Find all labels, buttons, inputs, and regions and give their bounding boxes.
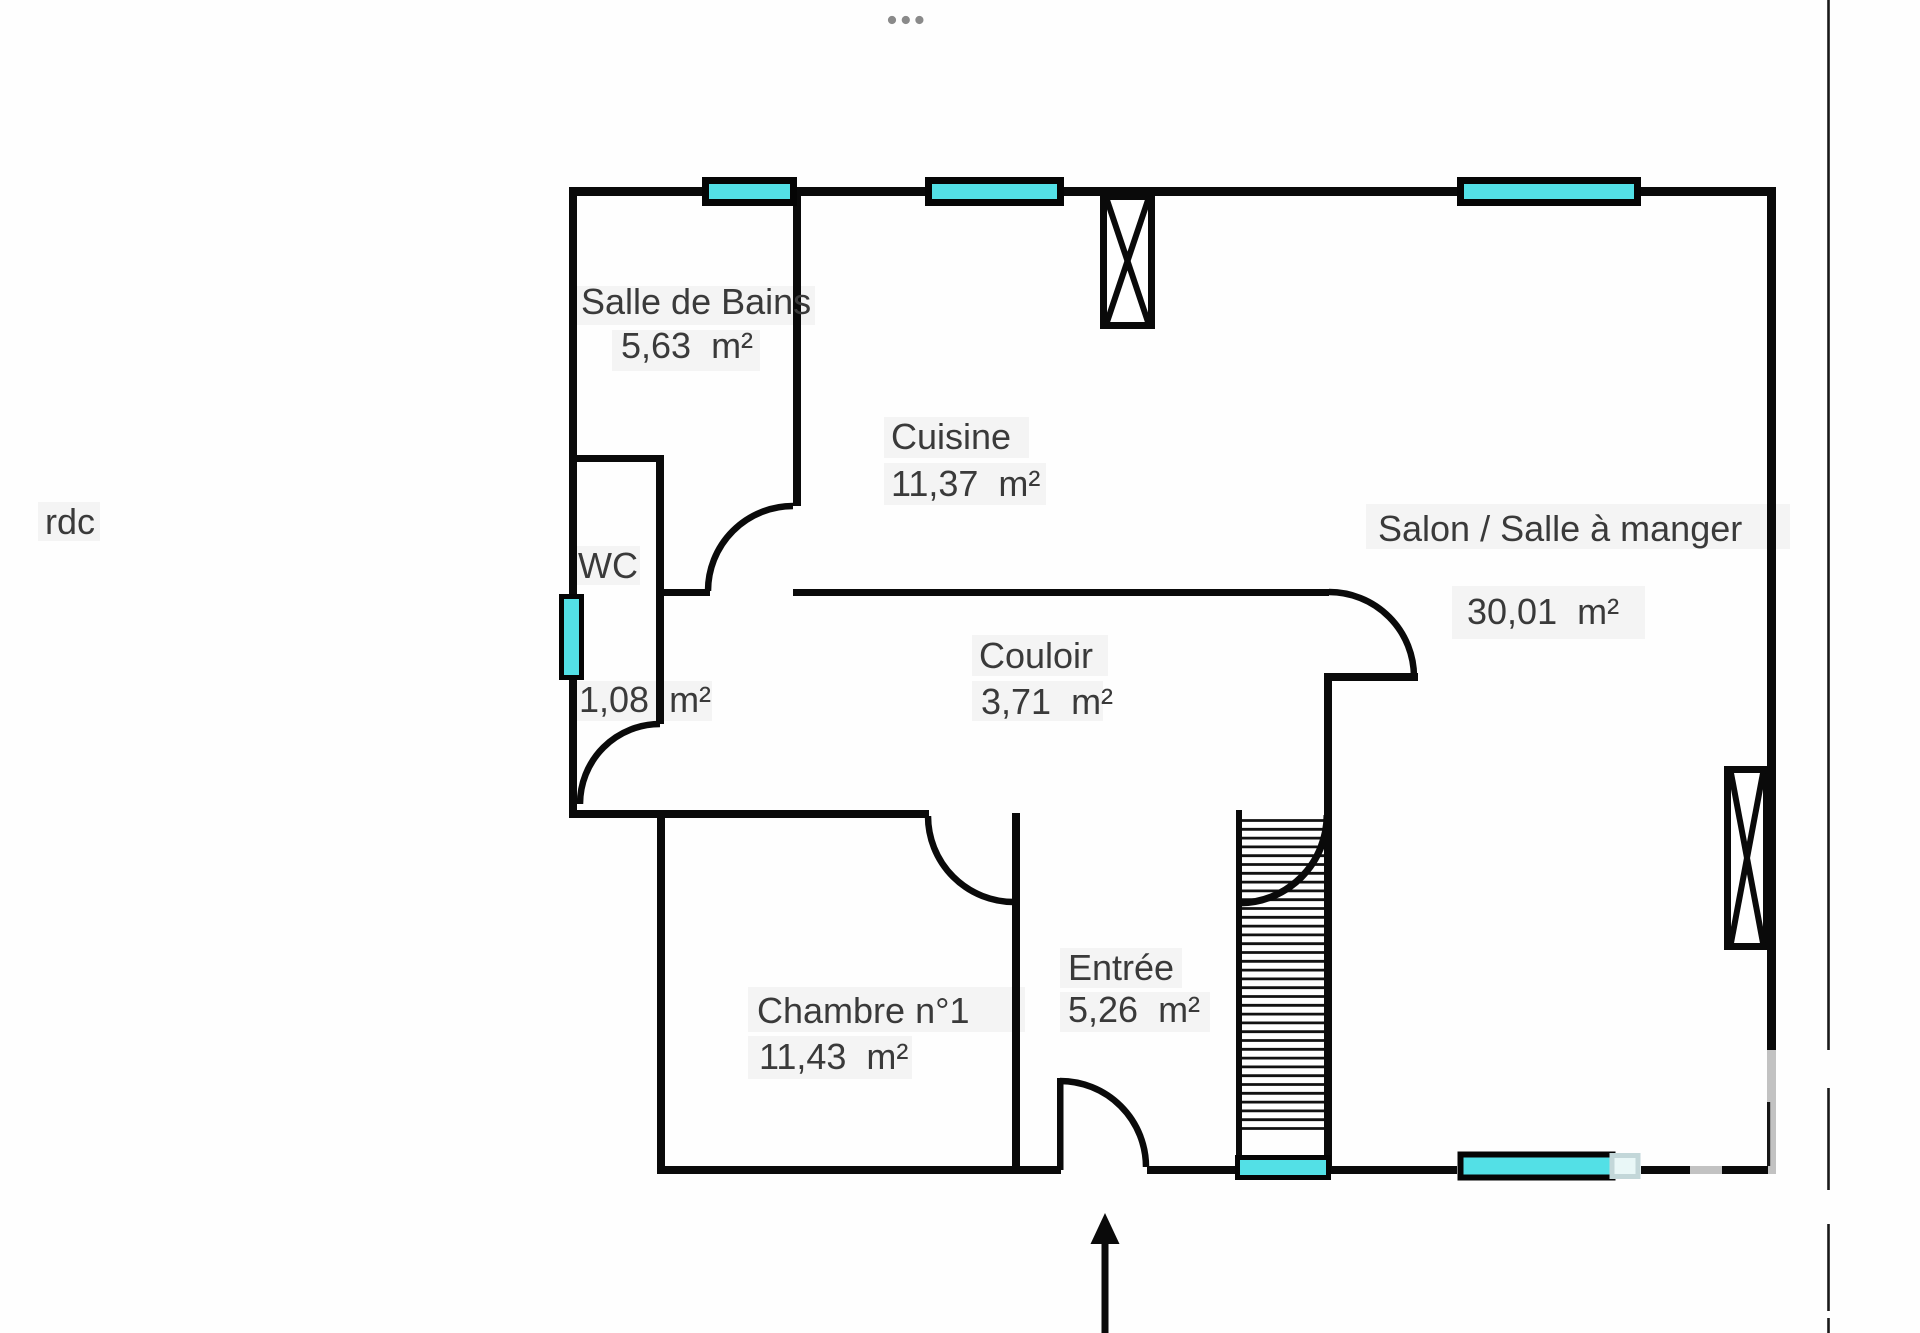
svg-text:Chambre n°1: Chambre n°1 bbox=[757, 990, 970, 1031]
svg-text:30,01 m²: 30,01 m² bbox=[1467, 591, 1619, 632]
svg-text:Cuisine: Cuisine bbox=[891, 416, 1011, 457]
svg-text:11,43 m²: 11,43 m² bbox=[759, 1036, 908, 1077]
svg-text:Salle de Bains: Salle de Bains bbox=[581, 281, 811, 322]
svg-text:WC: WC bbox=[578, 545, 638, 586]
svg-text:5,26 m²: 5,26 m² bbox=[1068, 989, 1200, 1030]
svg-text:5,63 m²: 5,63 m² bbox=[621, 325, 753, 366]
svg-text:1,08 m²: 1,08 m² bbox=[579, 679, 711, 720]
svg-text:Salon / Salle à manger: Salon / Salle à manger bbox=[1378, 508, 1742, 549]
svg-text:Entrée: Entrée bbox=[1068, 947, 1174, 988]
svg-text:Couloir: Couloir bbox=[979, 635, 1093, 676]
svg-text:11,37 m²: 11,37 m² bbox=[891, 463, 1040, 504]
svg-text:3,71 m²: 3,71 m² bbox=[981, 681, 1113, 722]
svg-text:rdc: rdc bbox=[45, 501, 95, 542]
